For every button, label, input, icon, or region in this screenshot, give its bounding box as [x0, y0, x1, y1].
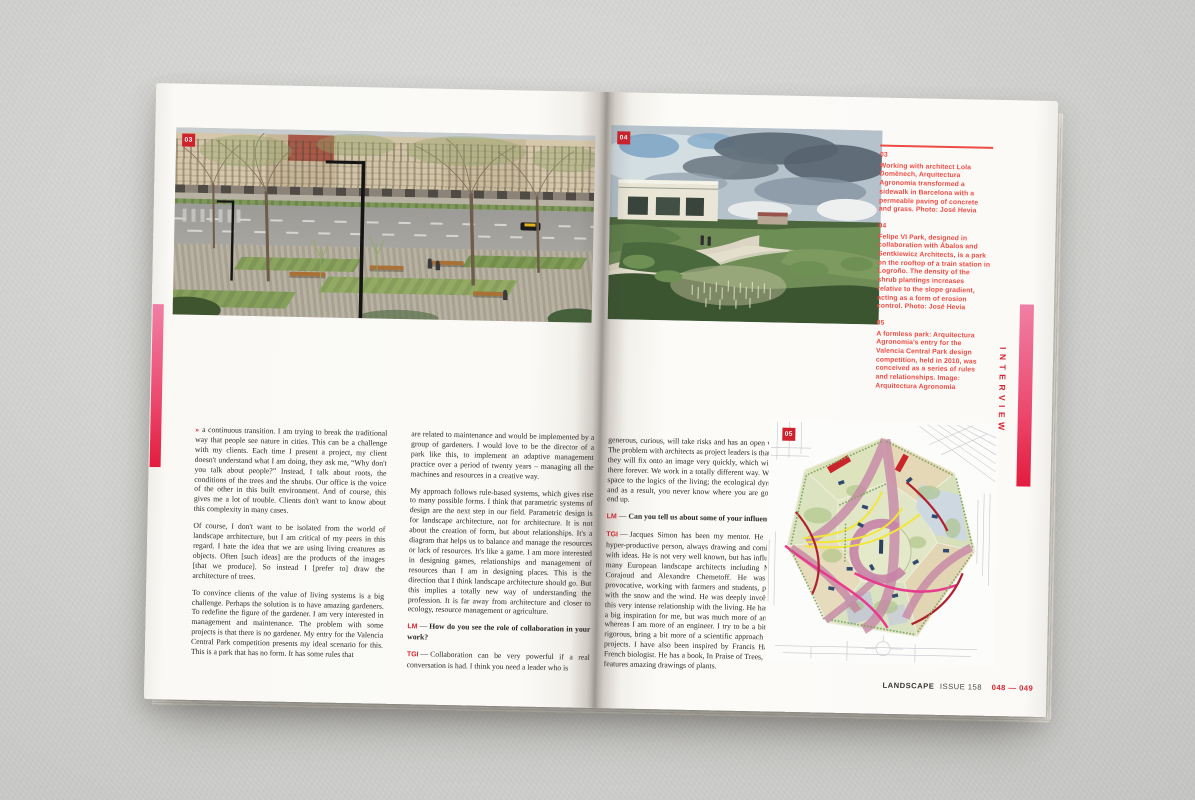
continuation-mark: » — [195, 425, 199, 434]
caption-rule — [880, 145, 993, 149]
photo-backdrop: 03 »a continuous transition. I am trying… — [0, 0, 1195, 800]
issue-number: ISSUE 158 — [940, 682, 982, 692]
interviewee-initials: TGI — [407, 651, 419, 658]
figure-badge-05: 05 — [782, 428, 795, 441]
qa-dash: — — [619, 512, 627, 521]
article-column-3: generous, curious, will take risks and h… — [603, 435, 788, 680]
page-right: 04 03 Working with architect Lola Domène… — [595, 92, 1058, 717]
figure-badge-04: 04 — [617, 131, 630, 144]
map-valencia-central-park-plan: 05 — [765, 419, 999, 666]
caption-text: A formless park: Arquitectura Agronomia'… — [875, 330, 989, 393]
photo-barcelona-sidewalk: 03 — [173, 127, 596, 322]
interview-answer: TGI—Collaboration can be very powerful i… — [407, 649, 590, 673]
paragraph: Of course, I don't want to be isolated f… — [192, 521, 385, 584]
interviewee-initials: TGI — [606, 531, 618, 538]
interview-answer: TGI—Jacques Simon has been my mentor. He… — [604, 529, 787, 672]
interview-question: LM—Can you tell us about some of your in… — [607, 511, 787, 526]
paragraph-text: a continuous transition. I am trying to … — [194, 425, 388, 515]
interview-question: LM—How do you see the role of collaborat… — [407, 621, 590, 645]
park-photo-drawing — [608, 125, 883, 324]
caption-number: 03 — [880, 152, 993, 163]
open-spread: 03 »a continuous transition. I am trying… — [144, 83, 1058, 717]
interviewer-initials: LM — [407, 623, 417, 630]
magazine-spread: 03 »a continuous transition. I am trying… — [144, 83, 1058, 717]
caption-04: 04 Felipe VI Park, designed in collabora… — [877, 222, 992, 313]
caption-text: Working with architect Lola Domènech, Ar… — [879, 162, 993, 216]
caption-03: 03 Working with architect Lola Domènech,… — [879, 152, 993, 217]
accent-bar-left — [150, 304, 164, 467]
answer-text: Collaboration can be very powerful if a … — [407, 650, 590, 673]
section-label-interview: INTERVIEW — [996, 347, 1008, 435]
photo-captions: 03 Working with architect Lola Domènech,… — [875, 145, 993, 402]
paragraph: To convince clients of the value of livi… — [191, 587, 384, 660]
page-numbers: 048 — 049 — [992, 683, 1034, 693]
paragraph: are related to maintenance and would be … — [410, 429, 594, 482]
paragraph: My approach follows rule-based systems, … — [408, 486, 594, 618]
paragraph: generous, curious, will take risks and h… — [607, 435, 788, 508]
caption-number: 05 — [876, 319, 989, 330]
qa-dash: — — [419, 622, 427, 631]
page-footer: LANDSCAPE ISSUE 158 048 — 049 — [882, 681, 1033, 693]
qa-dash: — — [420, 650, 428, 659]
paragraph: »a continuous transition. I am trying to… — [194, 425, 388, 518]
interviewer-initials: LM — [607, 513, 617, 520]
article-column-1: »a continuous transition. I am trying to… — [191, 425, 388, 668]
question-text: Can you tell us about some of your influ… — [628, 512, 780, 524]
caption-05: 05 A formless park: Arquitectura Agronom… — [875, 319, 989, 393]
magazine-title: LANDSCAPE — [882, 681, 934, 691]
figure-badge-03: 03 — [182, 134, 195, 147]
answer-text: Jacques Simon has been my mentor. He was… — [604, 530, 787, 671]
qa-dash: — — [620, 530, 628, 539]
caption-text: Felipe VI Park, designed in collaboratio… — [877, 233, 992, 314]
accent-bar-right — [1016, 304, 1034, 486]
article-column-2: are related to maintenance and would be … — [406, 429, 594, 681]
caption-number: 04 — [878, 222, 991, 233]
trees-and-street-furniture-drawing — [173, 127, 596, 322]
question-text: How do you see the role of collaboration… — [407, 622, 590, 642]
page-left: 03 »a continuous transition. I am trying… — [144, 83, 607, 708]
masterplan-drawing — [765, 419, 999, 666]
photo-felipe-vi-park: 04 — [608, 125, 883, 324]
